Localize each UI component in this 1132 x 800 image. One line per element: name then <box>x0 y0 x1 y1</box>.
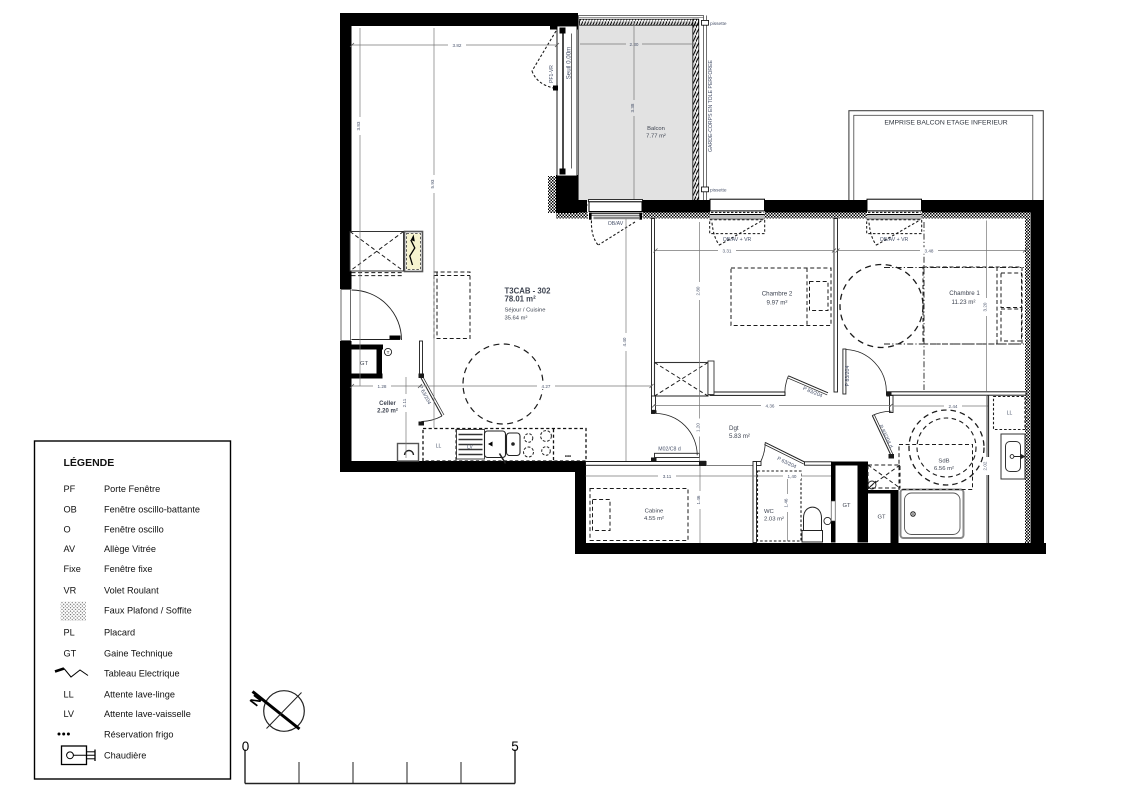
svg-text:LL: LL <box>436 444 442 450</box>
svg-text:Cabine: Cabine <box>645 509 664 515</box>
svg-text:1,40: 1,40 <box>788 474 797 479</box>
svg-text:3.82: 3.82 <box>453 43 462 48</box>
svg-text:4.55 m²: 4.55 m² <box>644 516 664 522</box>
svg-text:9.97 m²: 9.97 m² <box>767 300 788 307</box>
svg-text:OB/AV: OB/AV <box>608 221 624 227</box>
svg-text:4.27: 4.27 <box>542 384 551 389</box>
svg-text:3.31: 3.31 <box>723 249 732 254</box>
svg-text:pissette: pissette <box>710 187 727 193</box>
svg-text:Chambre 2: Chambre 2 <box>762 291 793 298</box>
svg-text:2.80: 2.80 <box>696 286 701 295</box>
svg-text:1.46: 1.46 <box>696 495 701 504</box>
svg-text:1.46: 1.46 <box>784 498 789 507</box>
svg-text:Fenêtre fixe: Fenêtre fixe <box>104 564 153 574</box>
svg-text:Placard: Placard <box>104 628 135 638</box>
svg-text:Seuil 0.00m: Seuil 0.00m <box>566 47 573 80</box>
svg-text:AV: AV <box>64 544 76 554</box>
svg-text:3.38: 3.38 <box>630 103 635 112</box>
svg-text:5.93: 5.93 <box>430 179 435 188</box>
svg-text:LL: LL <box>64 690 74 700</box>
svg-text:1.20: 1.20 <box>696 423 701 432</box>
svg-text:EMPRISE BALCON ETAGE INFERIEUR: EMPRISE BALCON ETAGE INFERIEUR <box>884 120 1007 127</box>
svg-text:5: 5 <box>511 739 519 754</box>
svg-text:2.44: 2.44 <box>949 404 958 409</box>
svg-text:GARDE-CORPS EN TOLE PERFOREE: GARDE-CORPS EN TOLE PERFOREE <box>708 59 714 152</box>
svg-text:2.02: 2.02 <box>983 461 988 470</box>
svg-text:4.40: 4.40 <box>622 337 627 346</box>
svg-text:Fenêtre oscillo: Fenêtre oscillo <box>104 525 164 535</box>
svg-text:Celler: Celler <box>379 401 396 407</box>
svg-text:Séjour / Cuisine: Séjour / Cuisine <box>505 308 546 314</box>
svg-text:T: T <box>387 350 390 355</box>
svg-text:•••: ••• <box>565 454 571 460</box>
svg-text:GT: GT <box>64 649 77 659</box>
svg-text:Balcon: Balcon <box>647 126 665 132</box>
svg-text:7.77 m²: 7.77 m² <box>646 134 666 140</box>
svg-text:Fenêtre oscillo-battante: Fenêtre oscillo-battante <box>104 505 200 515</box>
svg-text:2.11: 2.11 <box>402 398 407 407</box>
svg-text:Volet Roulant: Volet Roulant <box>104 586 159 596</box>
svg-text:3.20: 3.20 <box>983 302 988 311</box>
svg-text:3.11: 3.11 <box>663 474 672 479</box>
svg-text:OB/AV + VR: OB/AV + VR <box>723 237 752 243</box>
svg-text:4.36: 4.36 <box>766 404 775 409</box>
svg-text:Porte Fenêtre: Porte Fenêtre <box>104 484 160 494</box>
svg-text:Chaudière: Chaudière <box>104 751 146 761</box>
svg-text:OB: OB <box>64 505 77 515</box>
svg-text:LV: LV <box>467 445 473 451</box>
svg-text:2.20 m²: 2.20 m² <box>377 408 398 415</box>
svg-text:OB/AV + VR: OB/AV + VR <box>880 237 909 243</box>
svg-text:Fixe: Fixe <box>64 564 81 574</box>
svg-text:5.83 m²: 5.83 m² <box>729 433 750 440</box>
svg-text:GT: GT <box>842 503 851 509</box>
svg-text:VR: VR <box>64 586 77 596</box>
svg-text:Faux Plafond / Soffite: Faux Plafond / Soffite <box>104 606 192 616</box>
svg-text:0: 0 <box>242 739 250 754</box>
svg-text:6.56 m²: 6.56 m² <box>934 466 954 472</box>
svg-text:78.01 m²: 78.01 m² <box>505 295 537 304</box>
svg-text:Attente lave-linge: Attente lave-linge <box>104 690 175 700</box>
svg-text:Allège Vitrée: Allège Vitrée <box>104 544 156 554</box>
svg-text:Attente lave-vaisselle: Attente lave-vaisselle <box>104 709 191 719</box>
svg-text:PF: PF <box>64 484 76 494</box>
svg-text:3.48: 3.48 <box>925 249 934 254</box>
svg-text:O: O <box>64 525 71 535</box>
svg-text:2.03 m²: 2.03 m² <box>764 517 784 523</box>
svg-text:Dgt: Dgt <box>729 425 739 432</box>
svg-text:LÉGENDE: LÉGENDE <box>64 456 115 469</box>
svg-text:WC: WC <box>764 509 775 515</box>
svg-text:3.83: 3.83 <box>356 121 361 130</box>
svg-text:pissette: pissette <box>710 21 727 27</box>
svg-text:PL: PL <box>64 628 75 638</box>
svg-text:M02/C8 d: M02/C8 d <box>658 447 681 453</box>
svg-text:Gaine Technique: Gaine Technique <box>104 649 173 659</box>
svg-text:Tableau Electrique: Tableau Electrique <box>104 669 180 679</box>
svg-text:PF1-VR: PF1-VR <box>549 65 555 83</box>
svg-text:GT: GT <box>360 361 369 367</box>
svg-text:1.28: 1.28 <box>378 384 387 389</box>
svg-text:35.64 m²: 35.64 m² <box>505 316 528 322</box>
svg-text:LL: LL <box>1007 411 1013 417</box>
svg-text:P 83/204: P 83/204 <box>845 366 851 387</box>
svg-text:SdB: SdB <box>938 459 949 465</box>
svg-text:GT: GT <box>877 515 886 521</box>
svg-text:Réservation frigo: Réservation frigo <box>104 730 173 740</box>
svg-text:LV: LV <box>64 709 75 719</box>
svg-text:11.23 m²: 11.23 m² <box>952 299 976 306</box>
svg-text:Chambre 1: Chambre 1 <box>949 290 980 297</box>
